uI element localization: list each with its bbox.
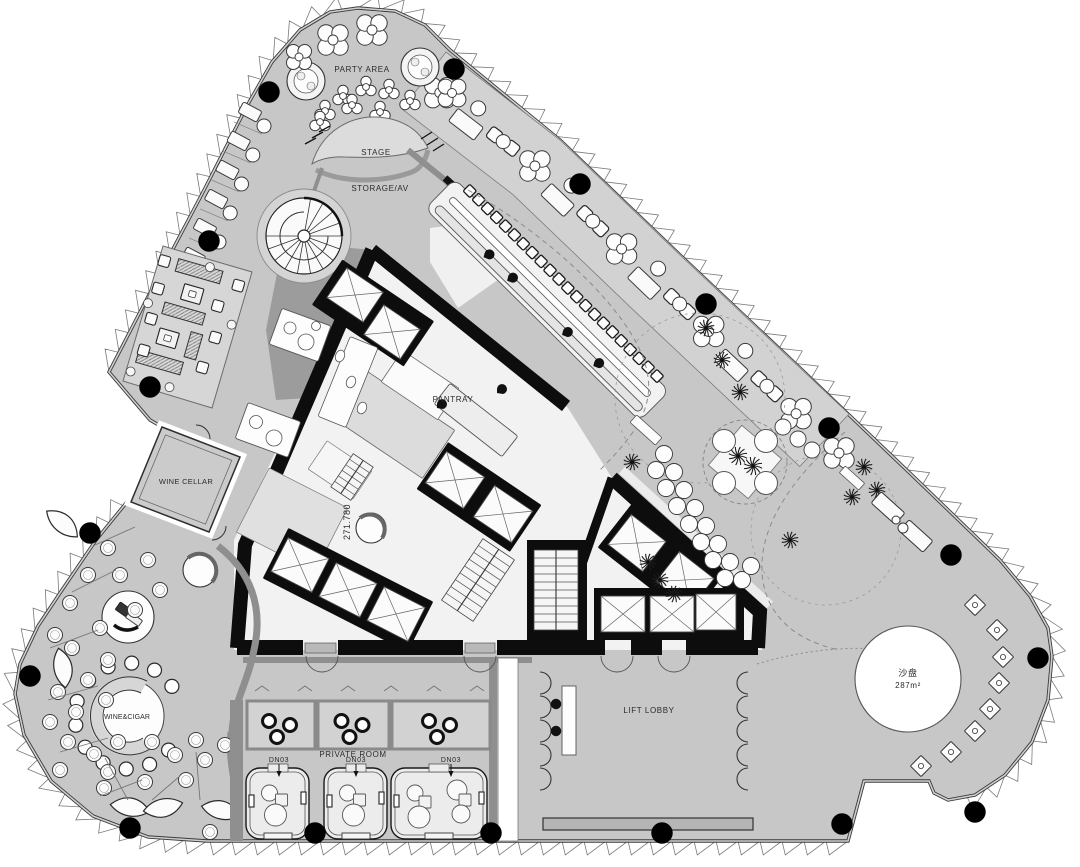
svg-text:LIFT LOBBY: LIFT LOBBY xyxy=(623,706,674,715)
svg-text:DN03: DN03 xyxy=(441,757,461,764)
svg-text:PARTY AREA: PARTY AREA xyxy=(334,65,389,74)
svg-text:STAGE: STAGE xyxy=(361,148,391,157)
svg-text:WINE&CIGAR: WINE&CIGAR xyxy=(104,714,150,721)
svg-text:PANTRAY: PANTRAY xyxy=(433,395,474,404)
svg-text:DN03: DN03 xyxy=(346,757,366,764)
svg-text:STORAGE/AV: STORAGE/AV xyxy=(351,184,408,193)
svg-text:271.780: 271.780 xyxy=(342,504,352,540)
svg-text:287m²: 287m² xyxy=(895,681,921,690)
svg-text:DN03: DN03 xyxy=(269,757,289,764)
svg-text:沙盘: 沙盘 xyxy=(898,667,917,678)
svg-text:WINE CELLAR: WINE CELLAR xyxy=(159,477,213,486)
